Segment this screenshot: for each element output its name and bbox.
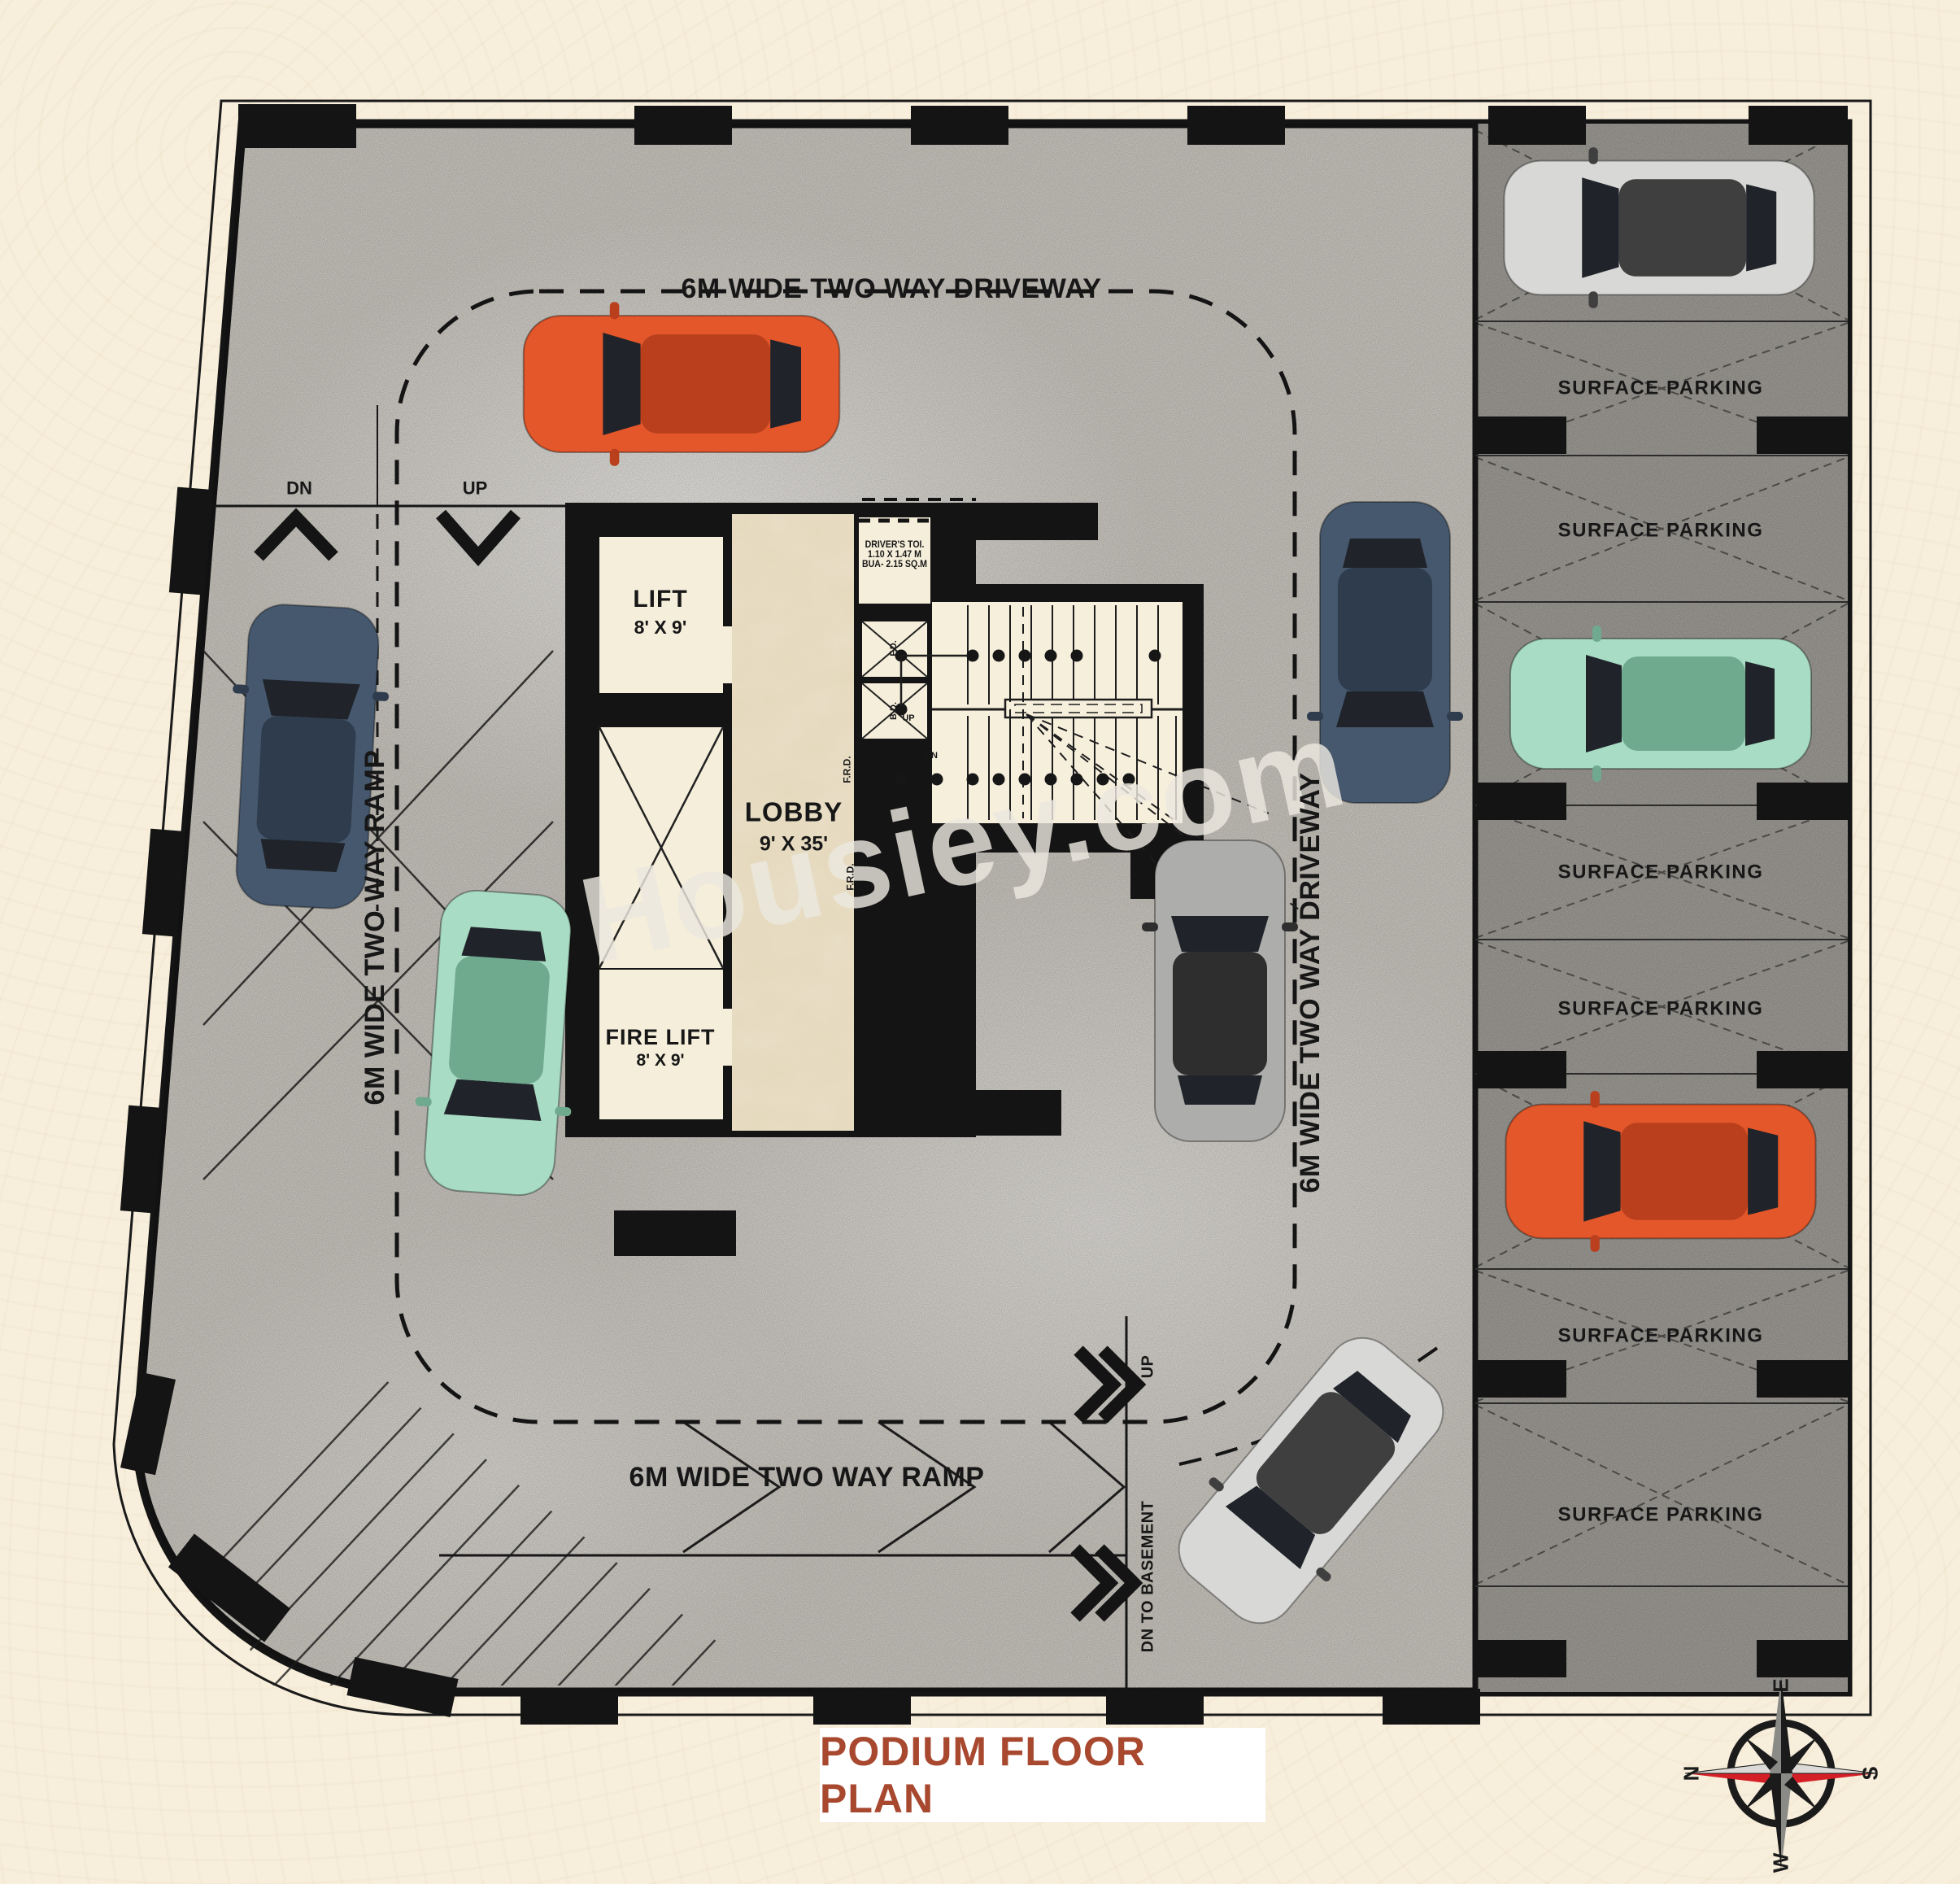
compass-n: N [1679, 1766, 1705, 1782]
surface-parking-label-6: SURFACE PARKING [1558, 1504, 1764, 1524]
plan-title: PODIUM FLOOR PLAN [820, 1728, 1265, 1822]
compass-e: E [1769, 1678, 1794, 1692]
compass-s: S [1858, 1766, 1884, 1780]
ramp-left-label: 6M WIDE TWO WAY RAMP [361, 750, 390, 1106]
surface-parking-label-3: SURFACE PARKING [1558, 861, 1764, 882]
fd-label: F.D. [890, 640, 899, 656]
surface-parking-label-4: SURFACE PARKING [1558, 998, 1764, 1018]
driveway-top-label: 6M WIDE TWO WAY DRIVEWAY [681, 275, 1101, 304]
up-label: UP [463, 478, 488, 497]
compass-w: W [1769, 1853, 1794, 1873]
lobby-label: LOBBY 9' X 35' [745, 799, 843, 855]
surface-parking-label-5: SURFACE PARKING [1558, 1325, 1764, 1345]
car-stall-orange [1505, 1091, 1815, 1252]
dn-label: DN [286, 478, 312, 497]
basement-up-label: UP [1140, 1355, 1157, 1379]
fire-lift-label: FIRE LIFT 8' X 9' [606, 1026, 716, 1070]
drivers-toilet-label: DRIVER'S TOI. 1.10 X 1.47 M BUA- 2.15 SQ… [860, 540, 930, 569]
driveway-right-label: 6M WIDE TWO WAY DRIVEWAY [1296, 772, 1326, 1193]
plan-title-box: PODIUM FLOOR PLAN [820, 1728, 1265, 1822]
frd-label-top: F.R.D. [843, 756, 853, 783]
car-driveway-orange [524, 302, 840, 466]
podium-floor-plan-page: Housiey.com 6M WIDE TWO WAY DRIVEWAY 6M … [0, 0, 1960, 1884]
surface-parking-label-1: SURFACE PARKING [1558, 377, 1764, 398]
car-stall-teal [1510, 626, 1811, 782]
stair-up-label: UP [902, 714, 914, 724]
ramp-bottom-label: 6M WIDE TWO WAY RAMP [629, 1463, 985, 1493]
lift-label: LIFT 8' X 9' [633, 587, 687, 637]
bd-label: B.D. [890, 702, 899, 720]
compass-rose [1685, 1677, 1877, 1869]
surface-parking-column [1475, 124, 1848, 1692]
car-stall-silver [1504, 147, 1814, 308]
surface-parking-label-2: SURFACE PARKING [1558, 520, 1764, 540]
car-center-gray-suv [1142, 840, 1298, 1141]
stair-dn-label: DN [925, 752, 938, 761]
basement-dn-label: DN TO BASEMENT [1140, 1501, 1157, 1653]
frd-label-bottom: F.R.D. [846, 863, 856, 890]
